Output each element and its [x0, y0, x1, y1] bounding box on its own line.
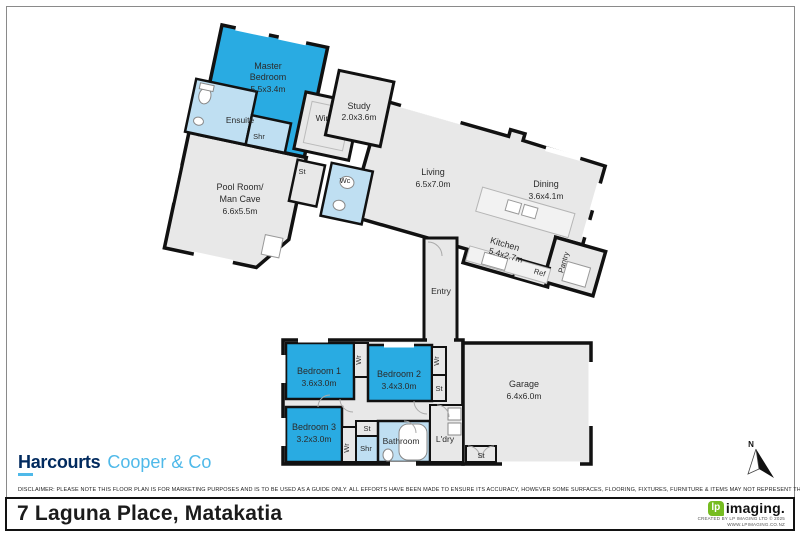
label-dining-dims: 3.6x4.1m: [529, 191, 564, 201]
north-arrow-icon: [748, 449, 774, 478]
imaging-wordmark: imaging.: [726, 501, 785, 515]
label-dining: Dining: [533, 179, 559, 189]
label-garage: Garage: [509, 379, 539, 389]
garage-door-gap: [502, 462, 580, 467]
harcourts-logo: Harcourts Cooper & Co: [18, 452, 211, 473]
label-pool-1: Pool Room/: [216, 182, 264, 192]
label-pool-dims: 6.6x5.5m: [223, 206, 258, 216]
label-ensuite: Ensuite: [226, 115, 255, 125]
agency-name: Harcourts: [18, 452, 100, 473]
wing-master-pool: [158, 19, 399, 290]
north-label: N: [748, 440, 754, 449]
label-st-bed2: St: [435, 384, 443, 393]
property-address: 7 Laguna Place, Matakatia: [7, 502, 282, 526]
imaging-credit-2: WWW.LPIMAGING.CO.NZ: [727, 523, 785, 528]
label-shr-bath: Shr: [360, 444, 372, 453]
label-living-dims: 6.5x7.0m: [416, 179, 451, 189]
wing-living-dining: [346, 94, 631, 300]
label-ldry: L'dry: [436, 434, 455, 444]
label-shr-ensuite: Shr: [253, 132, 265, 141]
label-pool-2: Man Cave: [219, 194, 260, 204]
label-garage-dims: 6.4x6.0m: [507, 391, 542, 401]
label-st-upper: St: [298, 167, 306, 176]
label-bedroom3-dims: 3.2x3.0m: [297, 434, 332, 444]
label-wr-bed3: Wr: [342, 443, 351, 453]
imaging-credit-1: CREATED BY LP IMAGING LTD © 2025: [698, 517, 785, 522]
label-bedroom3: Bedroom 3: [292, 422, 336, 432]
room-ensuite: [185, 79, 257, 145]
toilet-icon: [383, 449, 393, 461]
agency-suffix: Cooper & Co: [107, 452, 211, 473]
lp-icon: lp: [708, 501, 724, 516]
floorplan-canvas: Master Bedroom 5.5x3.4m Ensuite Shr Wir …: [0, 0, 800, 500]
logo-underline: [18, 473, 33, 476]
label-master-dims: 5.5x3.4m: [251, 84, 286, 94]
label-bedroom2-dims: 3.4x3.0m: [382, 381, 417, 391]
label-master-2: Bedroom: [250, 72, 287, 82]
label-wir: Wir: [316, 113, 329, 123]
label-st-bed3: St: [363, 424, 371, 433]
label-study: Study: [347, 101, 371, 111]
label-bathroom: Bathroom: [383, 436, 420, 446]
label-wr-bed2: Wr: [432, 356, 441, 366]
title-bar: 7 Laguna Place, Matakatia lp imaging. CR…: [5, 497, 795, 531]
window-gap: [390, 462, 416, 467]
label-wr-bed1: Wr: [354, 355, 363, 365]
label-living: Living: [421, 167, 445, 177]
poolroom-fixture-icon: [261, 235, 283, 258]
window-gap: [384, 343, 414, 348]
lp-imaging-logo: lp imaging. CREATED BY LP IMAGING LTD © …: [698, 501, 793, 528]
label-study-dims: 2.0x3.6m: [342, 112, 377, 122]
floorplan-page: Master Bedroom 5.5x3.4m Ensuite Shr Wir …: [0, 0, 800, 534]
label-master-1: Master: [254, 61, 282, 71]
label-bedroom1-dims: 3.6x3.0m: [302, 378, 337, 388]
window-gap: [281, 418, 286, 446]
window-gap: [298, 338, 328, 343]
window-gap: [281, 355, 286, 383]
garage-window-gap: [589, 362, 594, 426]
label-wc: Wc: [340, 176, 351, 185]
label-bedroom1: Bedroom 1: [297, 366, 341, 376]
label-entry: Entry: [431, 286, 452, 296]
disclaimer-text: DISCLAIMER: PLEASE NOTE THIS FLOOR PLAN …: [18, 487, 788, 493]
washer-icon: [448, 408, 461, 420]
label-st-garage: St: [477, 451, 485, 460]
label-bedroom2: Bedroom 2: [377, 369, 421, 379]
